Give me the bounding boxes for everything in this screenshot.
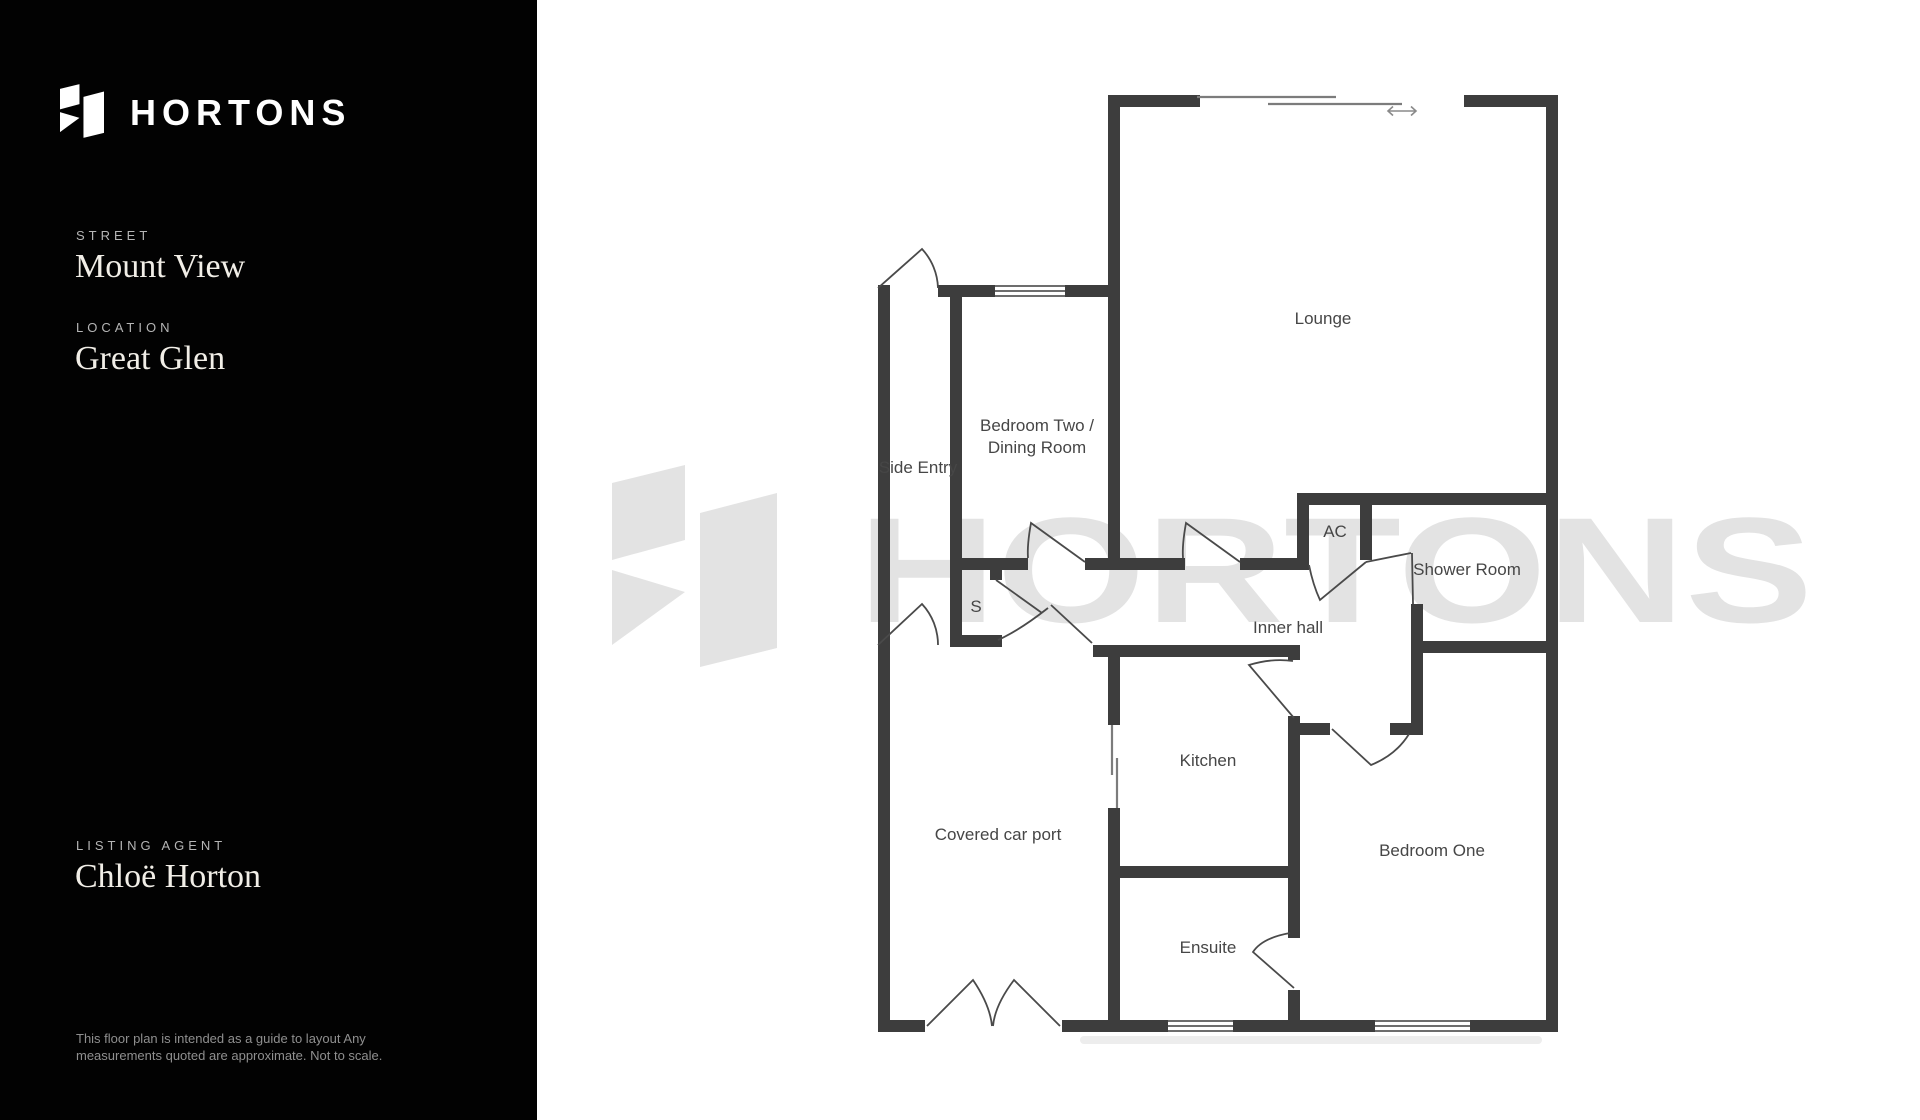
street-value: Mount View <box>75 248 245 286</box>
building-shadow <box>1080 1036 1542 1044</box>
location-value: Great Glen <box>75 340 225 378</box>
street-heading: STREET <box>76 228 151 243</box>
location-heading: LOCATION <box>76 320 174 335</box>
watermark: HORTONS <box>612 465 1813 667</box>
room-label-ensuite: Ensuite <box>1180 938 1237 957</box>
room-label-ac: AC <box>1323 522 1347 541</box>
room-label-covered-car-port: Covered car port <box>935 825 1062 844</box>
room-label-lounge: Lounge <box>1295 309 1352 328</box>
disclaimer-line2: measurements quoted are approximate. Not… <box>76 1047 426 1064</box>
listing-agent-heading: LISTING AGENT <box>76 838 226 853</box>
window-ensuite <box>1168 1020 1233 1032</box>
brand-wordmark: HORTONS <box>130 92 351 134</box>
room-label-bedroom-two-line2: Dining Room <box>988 438 1086 457</box>
room-label-side-entry: Side Entry <box>879 458 958 477</box>
window-bedroom-two <box>995 285 1065 297</box>
room-label-bedroom-one: Bedroom One <box>1379 841 1485 860</box>
door-carport-double <box>927 980 1060 1026</box>
room-label-shower-room: Shower Room <box>1413 560 1521 579</box>
disclaimer-line1: This floor plan is intended as a guide t… <box>76 1030 426 1047</box>
room-label-bedroom-two-line1: Bedroom Two / <box>980 416 1094 435</box>
listing-agent-value: Chloë Horton <box>75 858 261 896</box>
room-label-storage: S <box>970 597 981 616</box>
floorplan-page: HORTONS <box>0 0 1920 1120</box>
slide-arrow-icon <box>1388 107 1416 116</box>
window-bedroom-one <box>1375 1020 1470 1032</box>
disclaimer: This floor plan is intended as a guide t… <box>76 1030 426 1064</box>
hortons-logo-icon <box>60 84 104 138</box>
watermark-logo-icon <box>612 465 777 667</box>
door-kitchen <box>1249 660 1294 718</box>
windows <box>995 285 1470 1032</box>
sliding-doors <box>1112 97 1402 808</box>
sidebar: HORTONS STREET Mount View LOCATION Great… <box>0 0 537 1120</box>
room-label-inner-hall: Inner hall <box>1253 618 1323 637</box>
room-label-kitchen: Kitchen <box>1180 751 1237 770</box>
door-ensuite <box>1253 933 1294 988</box>
door-side-entry-top <box>878 249 938 288</box>
